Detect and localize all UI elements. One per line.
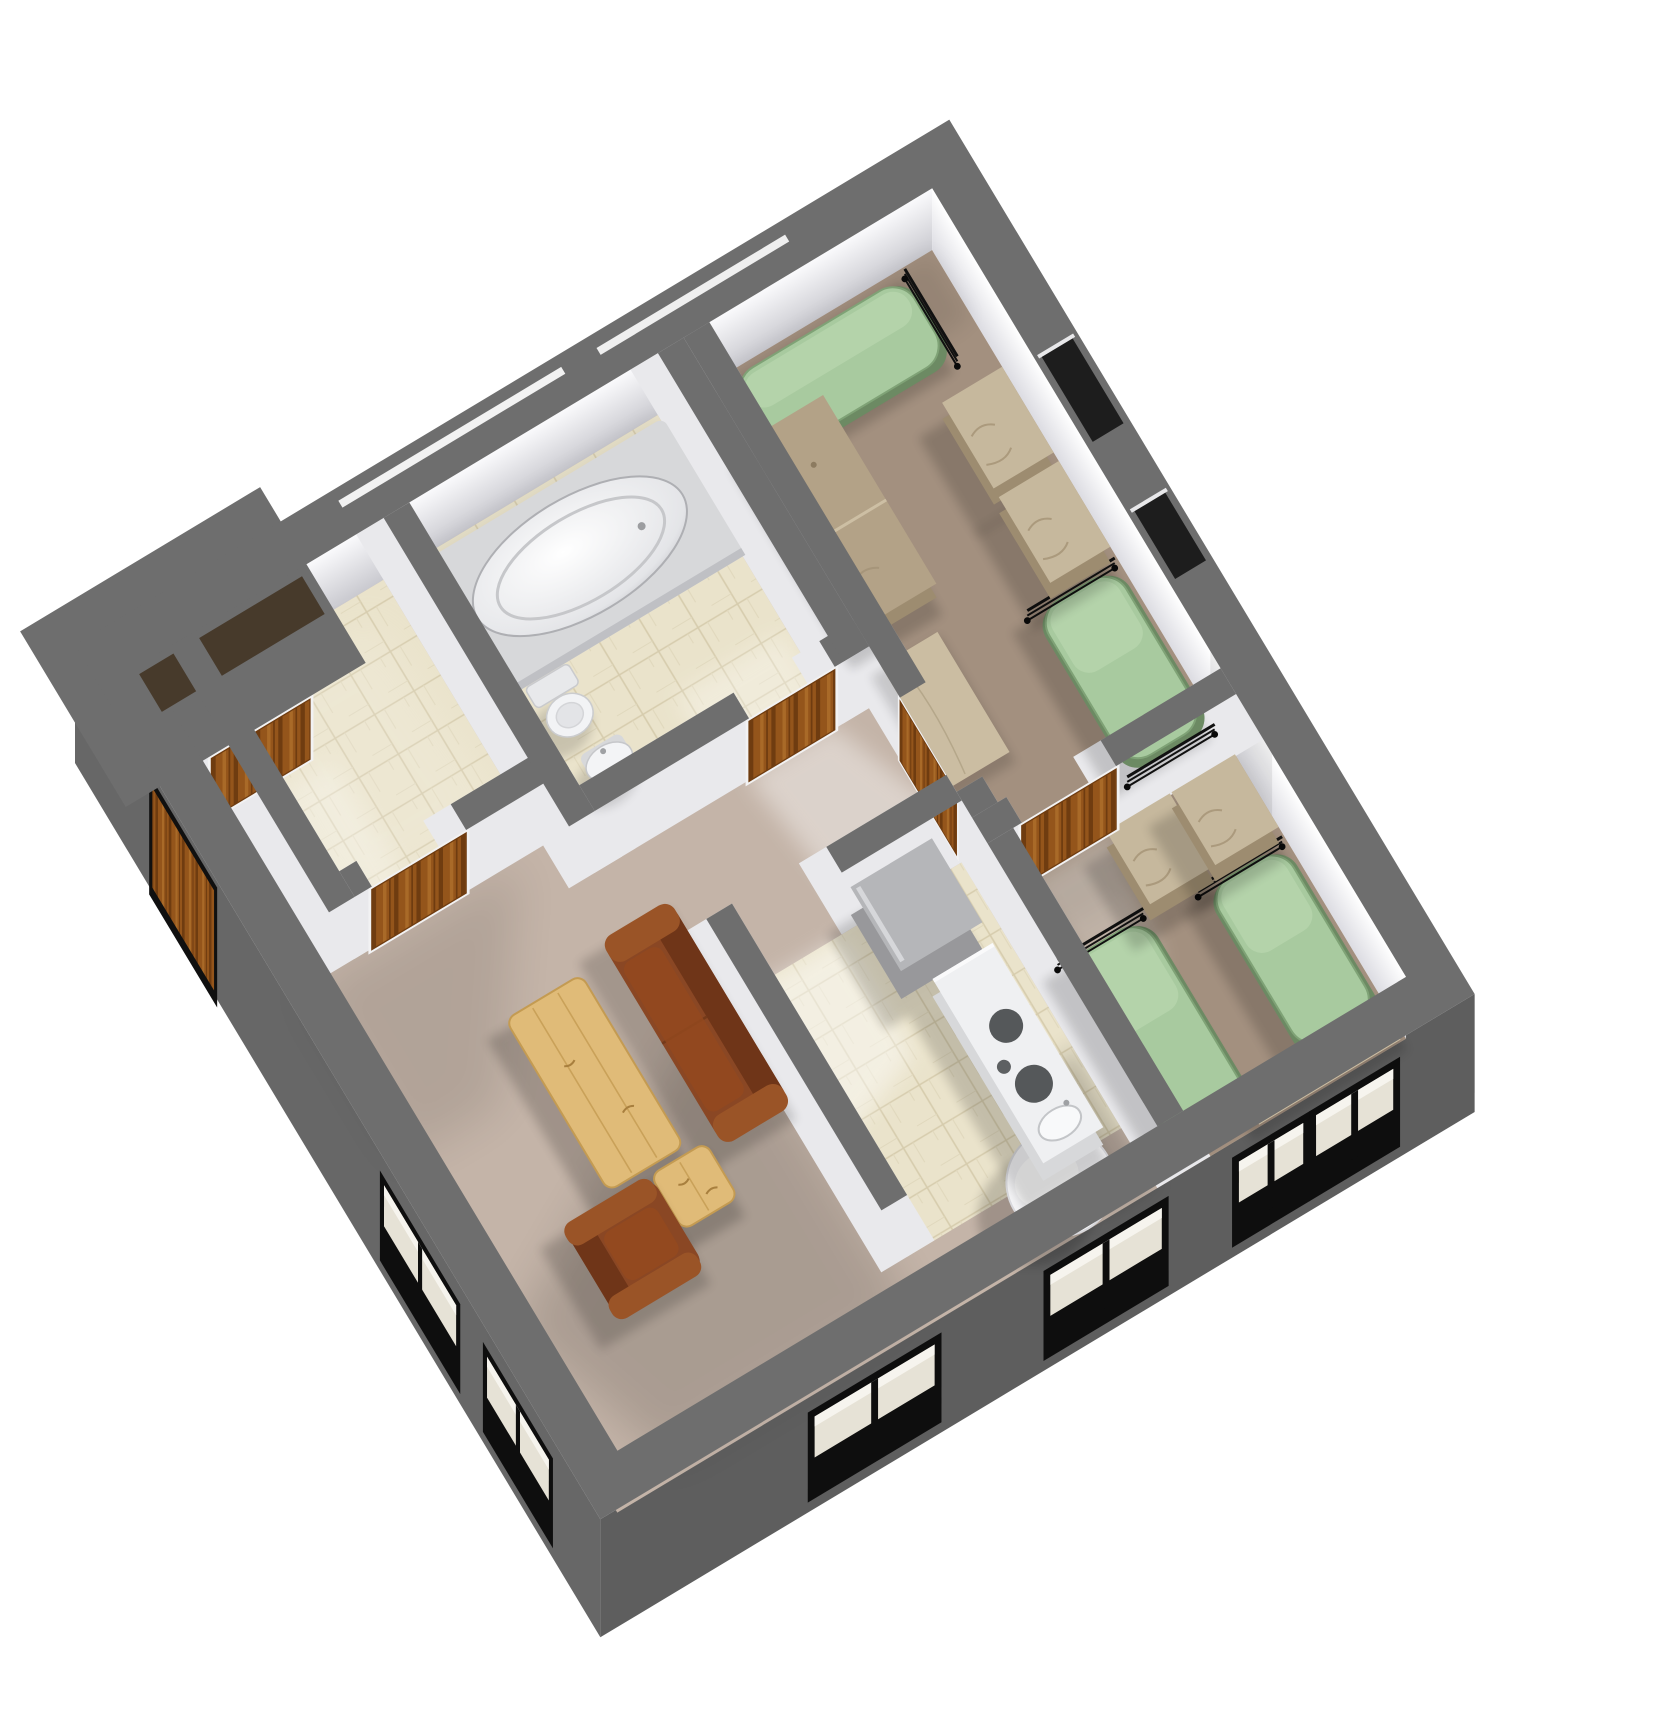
floor-plan-render [0,0,1677,1711]
isometric-floor-plan [0,0,1677,1711]
